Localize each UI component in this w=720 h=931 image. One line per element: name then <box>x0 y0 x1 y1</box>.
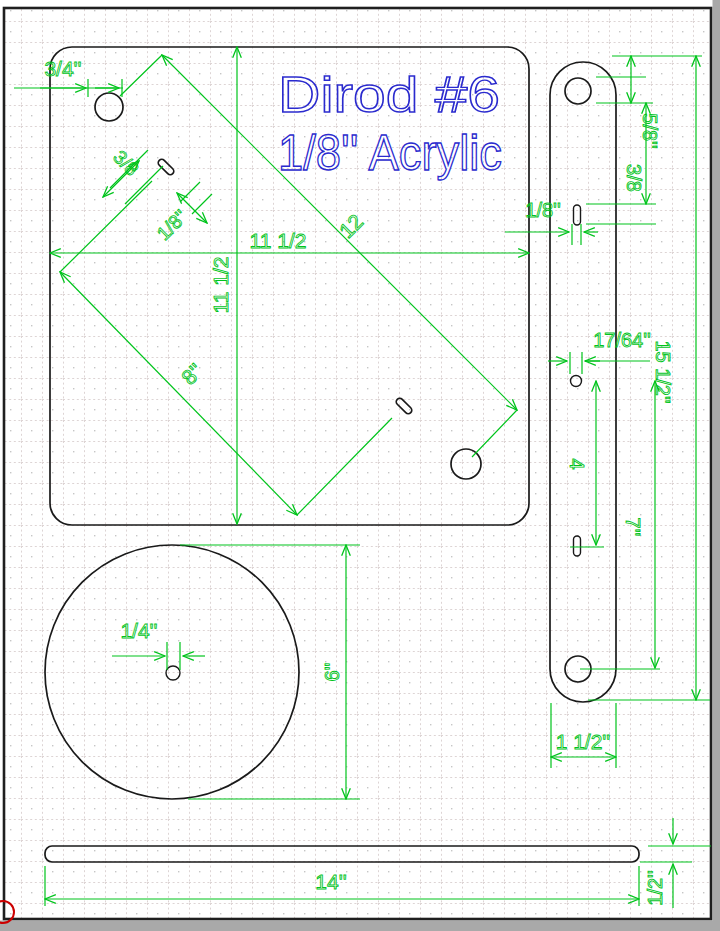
bottom-margin-shade <box>0 921 720 931</box>
bar-hole-spacing-label: 7'' <box>622 518 644 537</box>
bar-width-label: 1 1/2'' <box>556 730 611 753</box>
bar-length-label: 15 1/2'' <box>652 340 674 403</box>
drawing-sheet: Dirod #6 1/8'' Acrylic 3/4'' 11 1/2 11 1… <box>0 0 720 931</box>
plate-hole-offset-label: 3/4'' <box>44 57 81 80</box>
base-strip-length-label: 14'' <box>315 870 346 893</box>
right-margin-shade <box>713 0 720 931</box>
bar-hole-to-slot-label: 3/8 <box>623 164 645 192</box>
title-line-2: 1/8'' Acrylic <box>278 125 502 181</box>
title-line-1: Dirod #6 <box>278 67 500 123</box>
plate-width-label: 11 1/2 <box>250 229 307 252</box>
disc-center-hole-label: 1/4'' <box>120 619 157 642</box>
drawing-canvas: Dirod #6 1/8'' Acrylic 3/4'' 11 1/2 11 1… <box>0 0 720 931</box>
bar-four-inch-label: 4 <box>566 458 588 469</box>
base-strip-thickness-label: 1/2'' <box>644 870 666 905</box>
plate-height-label: 11 1/2 <box>209 257 232 314</box>
bar-slot-width-label: 1/8'' <box>525 199 560 221</box>
disc-diameter-label: 6'' <box>321 663 343 682</box>
bar-end-hole-offset-label: 5/8'' <box>639 113 661 148</box>
bar-center-hole-label: 17/64'' <box>593 329 651 351</box>
